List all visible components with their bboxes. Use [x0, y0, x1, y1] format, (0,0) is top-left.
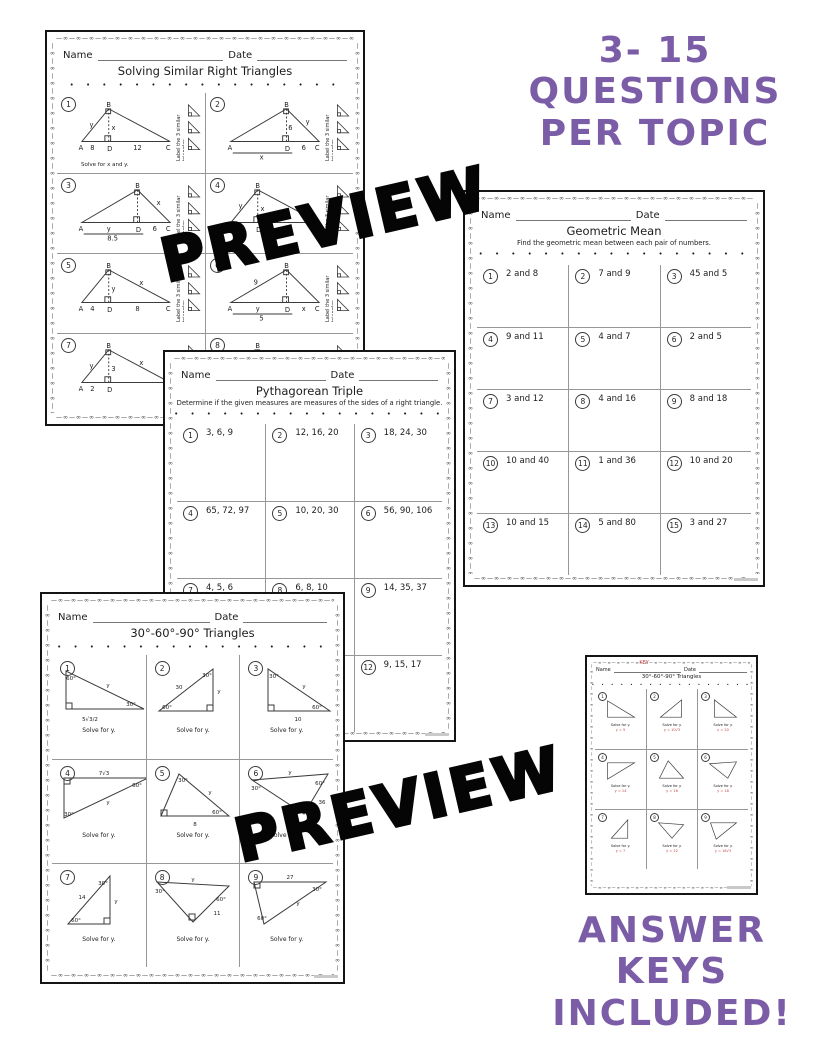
svg-text:y: y — [297, 901, 301, 907]
problem-cell: 7 30°14 y60° Solve for y. — [52, 863, 146, 967]
problem-number: 5 — [650, 753, 659, 762]
ornament-border: —∞—∞—∞—∞—∞—∞—∞—∞—∞—∞—∞—∞—∞—∞—∞—∞—∞—∞—∞—∞… — [174, 355, 445, 362]
name-label: Name — [181, 370, 211, 381]
problem-text: 7 and 9 — [598, 269, 630, 279]
problem-number: 4 — [483, 332, 498, 347]
page-title: Geometric Mean — [465, 224, 763, 238]
answer-text: y = 22 — [647, 849, 697, 853]
problem-cell: 12 and 8 — [477, 265, 568, 327]
page-instructions: Find the geometric mean between each pai… — [465, 239, 763, 247]
svg-text:C: C — [315, 144, 320, 152]
ornament-border: —∞—∞—∞—∞—∞—∞—∞—∞—∞—∞—∞—∞—∞—∞—∞—∞—∞—∞—∞—∞… — [474, 195, 754, 202]
problem-text: 2 and 8 — [506, 269, 538, 279]
svg-text:60°: 60° — [71, 918, 81, 924]
problem-caption: Solve for y. — [240, 727, 333, 734]
svg-text:8.5: 8.5 — [107, 235, 118, 243]
svg-text:3: 3 — [111, 365, 115, 373]
svg-text:30°: 30° — [269, 674, 279, 680]
svg-text:30°: 30° — [155, 889, 165, 895]
svg-text:60°: 60° — [66, 676, 76, 682]
problem-cell: 510, 20, 30 — [265, 501, 353, 578]
svg-text:60°: 60° — [257, 916, 267, 922]
footer-credit-mark — [425, 733, 449, 736]
problem-caption: Solve for y. — [595, 723, 646, 727]
callout-answer-keys: ANSWER KEYS INCLUDED! — [528, 910, 816, 1034]
svg-text:x: x — [260, 154, 264, 162]
svg-text:60°: 60° — [162, 705, 172, 711]
problem-text: 2 and 5 — [690, 332, 722, 342]
problem-text: 10 and 20 — [690, 456, 733, 466]
date-label: Date — [684, 667, 696, 673]
problem-cell: 1 60°y 30°5√3/2 Solve for y. — [52, 655, 146, 759]
svg-text:D: D — [107, 386, 112, 394]
problem-number: 12 — [667, 456, 682, 471]
svg-text:y: y — [89, 121, 93, 129]
problem-number: 3 — [701, 692, 710, 701]
svg-text:D: D — [285, 306, 290, 314]
svg-text:y: y — [217, 689, 221, 695]
problem-caption: Solve for y. — [698, 784, 748, 788]
answer-text: y = 7 — [595, 849, 646, 853]
svg-text:y: y — [303, 684, 307, 690]
problem-text: 1 and 36 — [598, 456, 636, 466]
svg-text:B: B — [106, 342, 111, 350]
svg-text:8: 8 — [135, 305, 139, 313]
problem-caption: Solve for y. — [52, 936, 146, 943]
svg-text:A: A — [79, 225, 84, 233]
problem-caption: Solve for y. — [698, 723, 748, 727]
problem-number: 4 — [598, 753, 607, 762]
problem-number: 6 — [701, 753, 710, 762]
date-line — [665, 208, 747, 221]
problem-cell: 1 AB CD yx 8 12 Solve for x and y. Label… — [57, 93, 205, 173]
problem-number: 7 — [61, 338, 76, 353]
problem-number: 4 — [60, 766, 75, 781]
svg-text:8: 8 — [193, 822, 197, 828]
svg-text:x: x — [157, 199, 161, 207]
callout-questions-per-topic: 3- 15 QUESTIONS PER TOPIC — [505, 30, 805, 154]
problem-number: 7 — [598, 813, 607, 822]
svg-text:6: 6 — [288, 124, 292, 132]
problem-number: 3 — [361, 428, 376, 443]
svg-text:60°: 60° — [212, 810, 222, 816]
svg-text:4: 4 — [90, 305, 94, 313]
name-line — [93, 610, 210, 623]
svg-text:60°: 60° — [312, 705, 322, 711]
problem-cell: 5 30°y 60°8 Solve for y. — [146, 759, 240, 863]
name-date-header: Name Date — [58, 610, 327, 623]
dot-divider: • • • • • • • • • • • • • • • • • — [47, 81, 363, 89]
problem-caption: Solve for x and y. — [81, 162, 128, 168]
date-line — [359, 368, 438, 381]
problem-cell: 9 2730° y60° Solve for y. — [239, 863, 333, 967]
problem-grid: 12 and 8 27 and 9 345 and 5 49 and 11 54… — [477, 265, 751, 575]
triangle-diagram — [652, 757, 692, 784]
problem-text: 3 and 27 — [690, 518, 728, 528]
date-label: Date — [228, 50, 252, 61]
problem-number: 1 — [60, 661, 75, 676]
problem-number: 8 — [650, 813, 659, 822]
problem-cell: 73 and 12 — [477, 389, 568, 451]
problem-number: 1 — [183, 428, 198, 443]
svg-text:C: C — [315, 305, 320, 313]
answer-text: y = 18√3 — [698, 849, 748, 853]
svg-text:x: x — [302, 305, 306, 313]
svg-text:30°: 30° — [251, 786, 261, 792]
rail-instruction: Label the 3 similar triangles. — [176, 97, 184, 161]
problem-cell: 6 Solve for y. y = 18 — [697, 749, 748, 809]
ornament-border: —∞—∞—∞—∞—∞—∞—∞—∞—∞—∞—∞—∞—∞—∞—∞—∞—∞—∞—∞—∞… — [474, 575, 754, 582]
name-line — [98, 48, 224, 61]
name-date-header: Name Date — [181, 368, 438, 381]
problem-text: 5 and 80 — [598, 518, 636, 528]
footer-credit-mark — [314, 975, 338, 978]
problem-caption: Solve for y. — [52, 727, 146, 734]
dot-divider: • • • • • • • • • • • • • • • • • — [465, 250, 763, 258]
problem-number: 4 — [183, 506, 198, 521]
problem-caption: Solve for y. — [647, 723, 697, 727]
ornament-border: —∞—∞—∞—∞—∞—∞—∞—∞—∞—∞—∞—∞—∞—∞—∞—∞—∞—∞—∞—∞… — [51, 597, 334, 604]
svg-text:C: C — [166, 305, 171, 313]
problem-cell: 4 Solve for y. y = 14 — [595, 749, 646, 809]
problem-text: 4 and 7 — [598, 332, 630, 342]
problem-number: 3 — [61, 178, 76, 193]
name-label: Name — [58, 612, 88, 623]
problem-number: 9 — [701, 813, 710, 822]
svg-text:2: 2 — [90, 385, 94, 393]
svg-text:6: 6 — [302, 144, 306, 152]
svg-text:x: x — [139, 359, 143, 367]
problem-number: 3 — [667, 269, 682, 284]
triangle-diagram — [601, 757, 641, 784]
problem-cell: 656, 90, 106 — [354, 501, 442, 578]
ornament-border: —∞—∞—∞—∞—∞—∞—∞—∞—∞—∞—∞—∞—∞—∞—∞—∞—∞—∞—∞—∞… — [44, 605, 51, 971]
problem-caption: Solve for y. — [595, 784, 646, 788]
problem-text: 45 and 5 — [690, 269, 728, 279]
problem-number: 5 — [575, 332, 590, 347]
rail-instruction: Label the 3 similar triangles. — [325, 258, 333, 322]
problem-number: 9 — [667, 394, 682, 409]
svg-text:30°: 30° — [126, 702, 136, 708]
problem-cell: 27 and 9 — [568, 265, 659, 327]
problem-number: 2 — [155, 661, 170, 676]
problem-cell: 1310 and 15 — [477, 513, 568, 575]
svg-text:A: A — [79, 305, 84, 313]
problem-text: 9 and 11 — [506, 332, 544, 342]
problem-number: 7 — [60, 870, 75, 885]
svg-text:7√3: 7√3 — [99, 770, 110, 777]
problem-cell: 1 Solve for y. y = 5 — [595, 689, 646, 749]
date-line — [699, 666, 747, 673]
problem-number: 6 — [667, 332, 682, 347]
problem-caption: Solve for y. — [147, 832, 240, 839]
triangle-diagram — [703, 817, 743, 844]
svg-text:30°: 30° — [202, 673, 212, 679]
triangle-diagram: AB CD yx 8 12 — [78, 97, 174, 163]
problem-cell: 212, 16, 20 — [265, 424, 353, 501]
dot-divider: • • • • • • • • • • • • • • • • • — [165, 410, 454, 418]
name-line — [216, 368, 326, 381]
problem-text: 10 and 15 — [506, 518, 549, 528]
answer-text: y = 20 — [698, 728, 748, 732]
problem-number: 8 — [155, 870, 170, 885]
problem-cell: 5 Solve for y. y = 16 — [646, 749, 697, 809]
callout-line: INCLUDED! — [528, 993, 816, 1034]
problem-text: 65, 72, 97 — [206, 506, 249, 516]
svg-text:D: D — [136, 226, 141, 234]
problem-number: 1 — [61, 97, 76, 112]
problem-number: 5 — [272, 506, 287, 521]
triangle-diagram: AB CD 6 y 6x — [227, 97, 323, 163]
date-line — [257, 48, 347, 61]
problem-number: 11 — [575, 456, 590, 471]
name-date-header: Name Date — [63, 48, 347, 61]
problem-caption: Solve for y. — [240, 936, 333, 943]
problem-caption: Solve for y. — [52, 832, 146, 839]
svg-text:A: A — [228, 144, 233, 152]
problem-cell: 8 Solve for y. y = 22 — [646, 809, 697, 869]
triangle-diagram: AB CD y3 x2 — [78, 338, 174, 404]
ornament-border: —∞—∞—∞—∞—∞—∞—∞—∞—∞—∞—∞—∞—∞—∞—∞—∞—∞—∞—∞—∞… — [51, 972, 334, 979]
problem-cell: 318, 24, 30 — [354, 424, 442, 501]
problem-number: 15 — [667, 518, 682, 533]
problem-number: 12 — [361, 660, 376, 675]
problem-cell: 2 Solve for y. y = 10√3 — [646, 689, 697, 749]
problem-cell: 2 AB CD 6 y 6x Label the 3 similar trian… — [205, 93, 353, 173]
footer-credit-mark — [734, 578, 758, 581]
svg-text:60°: 60° — [216, 897, 226, 903]
worksheet-30-60-90-triangles: —∞—∞—∞—∞—∞—∞—∞—∞—∞—∞—∞—∞—∞—∞—∞—∞—∞—∞—∞—∞… — [40, 592, 345, 984]
date-label: Date — [215, 612, 239, 623]
name-line — [516, 208, 631, 221]
svg-text:5: 5 — [259, 315, 263, 323]
ornament-border: —∞—∞—∞—∞—∞—∞—∞—∞—∞—∞—∞—∞—∞—∞—∞—∞—∞—∞—∞—∞… — [754, 203, 761, 574]
problem-text: 4 and 16 — [598, 394, 636, 404]
problem-cell: 153 and 27 — [660, 513, 751, 575]
problem-cell: 914, 35, 37 — [354, 578, 442, 655]
svg-text:B: B — [284, 101, 289, 109]
problem-number: 5 — [61, 258, 76, 273]
callout-line: ANSWER — [528, 910, 816, 951]
problem-cell: 7 Solve for y. y = 7 — [595, 809, 646, 869]
problem-number: 5 — [155, 766, 170, 781]
answer-text: y = 18 — [698, 789, 748, 793]
svg-text:A: A — [79, 144, 84, 152]
problem-cell: 465, 72, 97 — [177, 501, 265, 578]
svg-text:B: B — [106, 262, 111, 270]
triangle-diagram — [703, 757, 743, 784]
problem-text: 8 and 18 — [690, 394, 728, 404]
problem-cell: 145 and 80 — [568, 513, 659, 575]
svg-text:A: A — [79, 385, 84, 393]
name-date-header: Name Date — [481, 208, 747, 221]
name-line: KEY — [614, 666, 681, 673]
problem-cell: 2 30°30 y60° Solve for y. — [146, 655, 240, 759]
problem-caption: Solve for y. — [647, 844, 697, 848]
problem-caption: Solve for y. — [595, 844, 646, 848]
svg-text:27: 27 — [287, 875, 294, 881]
page-instructions: Determine if the given measures are meas… — [165, 399, 454, 407]
svg-text:B: B — [255, 182, 260, 190]
problem-number: 2 — [575, 269, 590, 284]
svg-text:D: D — [107, 306, 112, 314]
problem-cell: 1010 and 40 — [477, 451, 568, 513]
svg-text:B: B — [135, 182, 140, 190]
svg-text:y: y — [289, 770, 293, 776]
svg-text:y: y — [106, 683, 110, 689]
problem-caption: Solve for y. — [147, 936, 240, 943]
problem-number: 8 — [575, 394, 590, 409]
ornament-border: —∞—∞—∞—∞—∞—∞—∞—∞—∞—∞—∞—∞—∞—∞—∞—∞—∞—∞—∞—∞… — [49, 43, 56, 413]
problem-cell: 98 and 18 — [660, 389, 751, 451]
svg-text:60°: 60° — [132, 783, 142, 789]
worksheet-geometric-mean: —∞—∞—∞—∞—∞—∞—∞—∞—∞—∞—∞—∞—∞—∞—∞—∞—∞—∞—∞—∞… — [463, 190, 765, 587]
dot-divider: • • • • • • • • • • • • • • • • • — [42, 643, 343, 651]
ornament-border: —∞—∞—∞—∞—∞—∞—∞—∞—∞—∞—∞—∞—∞—∞—∞—∞—∞—∞—∞—∞… — [749, 664, 754, 886]
problem-cell: 1210 and 20 — [660, 451, 751, 513]
problem-number: 10 — [483, 456, 498, 471]
problem-number: 2 — [650, 692, 659, 701]
callout-line: 3- 15 — [505, 30, 805, 71]
svg-text:y: y — [107, 225, 111, 233]
svg-text:14: 14 — [79, 895, 86, 901]
mini-triangles — [335, 258, 351, 320]
problem-cell: 54 and 7 — [568, 327, 659, 389]
date-label: Date — [636, 210, 660, 221]
answer-text: y = 5 — [595, 728, 646, 732]
problem-caption: Solve for y. — [147, 727, 240, 734]
svg-text:A: A — [228, 305, 233, 313]
svg-text:30°: 30° — [98, 881, 108, 887]
problem-cell: 13, 6, 9 — [177, 424, 265, 501]
svg-text:y: y — [106, 800, 110, 806]
problem-cell: 4 7√360° y30° Solve for y. — [52, 759, 146, 863]
problem-number: 6 — [361, 506, 376, 521]
page-title: Solving Similar Right Triangles — [47, 64, 363, 78]
dot-divider: • • • • • • • • • • • • • • • • • — [587, 682, 756, 687]
name-label: Name — [63, 50, 93, 61]
problem-cell: 84 and 16 — [568, 389, 659, 451]
svg-text:8: 8 — [90, 144, 94, 152]
svg-text:y: y — [208, 790, 212, 796]
problem-number: 7 — [483, 394, 498, 409]
svg-text:y: y — [191, 877, 195, 883]
problem-cell: 3 30°y 60°10 Solve for y. — [239, 655, 333, 759]
page-title: 30°-60°-90° Triangles — [42, 626, 343, 640]
problem-cell: 3 Solve for y. y = 20 — [697, 689, 748, 749]
ornament-border: —∞—∞—∞—∞—∞—∞—∞—∞—∞—∞—∞—∞—∞—∞—∞—∞—∞—∞—∞—∞… — [467, 203, 474, 574]
triangle-diagram — [601, 817, 641, 844]
svg-text:30: 30 — [175, 685, 182, 691]
triangle-diagram — [601, 696, 641, 723]
svg-text:y: y — [112, 285, 116, 293]
rail-instruction: Label the 3 similar triangles. — [325, 97, 333, 161]
svg-text:30°: 30° — [312, 887, 322, 893]
problem-number: 13 — [483, 518, 498, 533]
ornament-border: —∞—∞—∞—∞—∞—∞—∞—∞—∞—∞—∞—∞—∞—∞—∞—∞—∞—∞—∞—∞… — [589, 664, 594, 886]
triangle-diagram: AB CD y x4 8 — [78, 258, 174, 324]
problem-text: 10 and 40 — [506, 456, 549, 466]
svg-text:30°: 30° — [64, 812, 74, 818]
problem-text: 14, 35, 37 — [384, 583, 427, 593]
footer-credit-mark — [727, 886, 751, 889]
problem-text: 9, 15, 17 — [384, 660, 422, 670]
svg-text:9: 9 — [254, 278, 258, 286]
problem-grid: 1 Solve for y. y = 5 2 Solve for y. y = … — [595, 689, 748, 869]
problem-text: 3, 6, 9 — [206, 428, 233, 438]
svg-text:D: D — [107, 145, 112, 153]
svg-text:C: C — [166, 144, 171, 152]
svg-text:x: x — [139, 279, 143, 287]
problem-cell: 62 and 5 — [660, 327, 751, 389]
problem-cell: 9 Solve for y. y = 18√3 — [697, 809, 748, 869]
answer-text: y = 10√3 — [647, 728, 697, 732]
triangle-diagram — [652, 817, 692, 844]
svg-text:B: B — [106, 101, 111, 109]
problem-number: 4 — [210, 178, 225, 193]
problem-caption: Solve for y. — [698, 844, 748, 848]
date-label: Date — [331, 370, 355, 381]
callout-line: QUESTIONS — [505, 71, 805, 112]
problem-cell: 49 and 11 — [477, 327, 568, 389]
svg-text:12: 12 — [133, 144, 142, 152]
problem-number: 9 — [361, 583, 376, 598]
callout-line: KEYS — [528, 951, 816, 992]
problem-number: 2 — [272, 428, 287, 443]
svg-text:y: y — [256, 305, 260, 313]
date-line — [243, 610, 327, 623]
svg-text:y: y — [114, 899, 118, 905]
answer-key-30-60-90: —∞—∞—∞—∞—∞—∞—∞—∞—∞—∞—∞—∞—∞—∞—∞—∞—∞—∞—∞—∞… — [585, 655, 758, 895]
svg-text:10: 10 — [295, 717, 302, 723]
problem-text: 10, 20, 30 — [295, 506, 338, 516]
svg-text:5√3/2: 5√3/2 — [82, 716, 98, 723]
svg-text:D: D — [285, 145, 290, 153]
page-title: 30°-60°-90° Triangles — [587, 674, 756, 680]
svg-text:30°: 30° — [178, 778, 188, 784]
page-title: Pythagorean Triple — [165, 384, 454, 398]
answer-text: y = 16 — [647, 789, 697, 793]
svg-text:y: y — [306, 118, 310, 126]
problem-cell: 111 and 36 — [568, 451, 659, 513]
answer-text: y = 14 — [595, 789, 646, 793]
ornament-border: —∞—∞—∞—∞—∞—∞—∞—∞—∞—∞—∞—∞—∞—∞—∞—∞—∞—∞—∞—∞… — [56, 35, 354, 42]
svg-text:11: 11 — [213, 911, 220, 917]
problem-cell: 129, 15, 17 — [354, 655, 442, 732]
problem-number: 1 — [598, 692, 607, 701]
ornament-border: —∞—∞—∞—∞—∞—∞—∞—∞—∞—∞—∞—∞—∞—∞—∞—∞—∞—∞—∞—∞… — [593, 660, 750, 665]
key-label: KEY — [639, 660, 649, 666]
problem-number: 2 — [210, 97, 225, 112]
problem-cell: 345 and 5 — [660, 265, 751, 327]
name-date-header: Name KEY Date — [596, 666, 747, 673]
callout-line: PER TOPIC — [505, 113, 805, 154]
problem-text: 18, 24, 30 — [384, 428, 427, 438]
triangle-diagram — [703, 696, 743, 723]
problem-text: 56, 90, 106 — [384, 506, 433, 516]
name-label: Name — [596, 667, 611, 673]
problem-caption: Solve for y. — [647, 784, 697, 788]
problem-text: 12, 16, 20 — [295, 428, 338, 438]
problem-cell: 8 30°y 60°11 Solve for y. — [146, 863, 240, 967]
svg-text:x: x — [112, 124, 116, 132]
triangle-diagram — [652, 696, 692, 723]
svg-text:y: y — [89, 362, 93, 370]
problem-number: 1 — [483, 269, 498, 284]
mini-triangles — [335, 97, 351, 159]
svg-text:B: B — [255, 342, 260, 350]
mini-triangles — [186, 97, 202, 159]
